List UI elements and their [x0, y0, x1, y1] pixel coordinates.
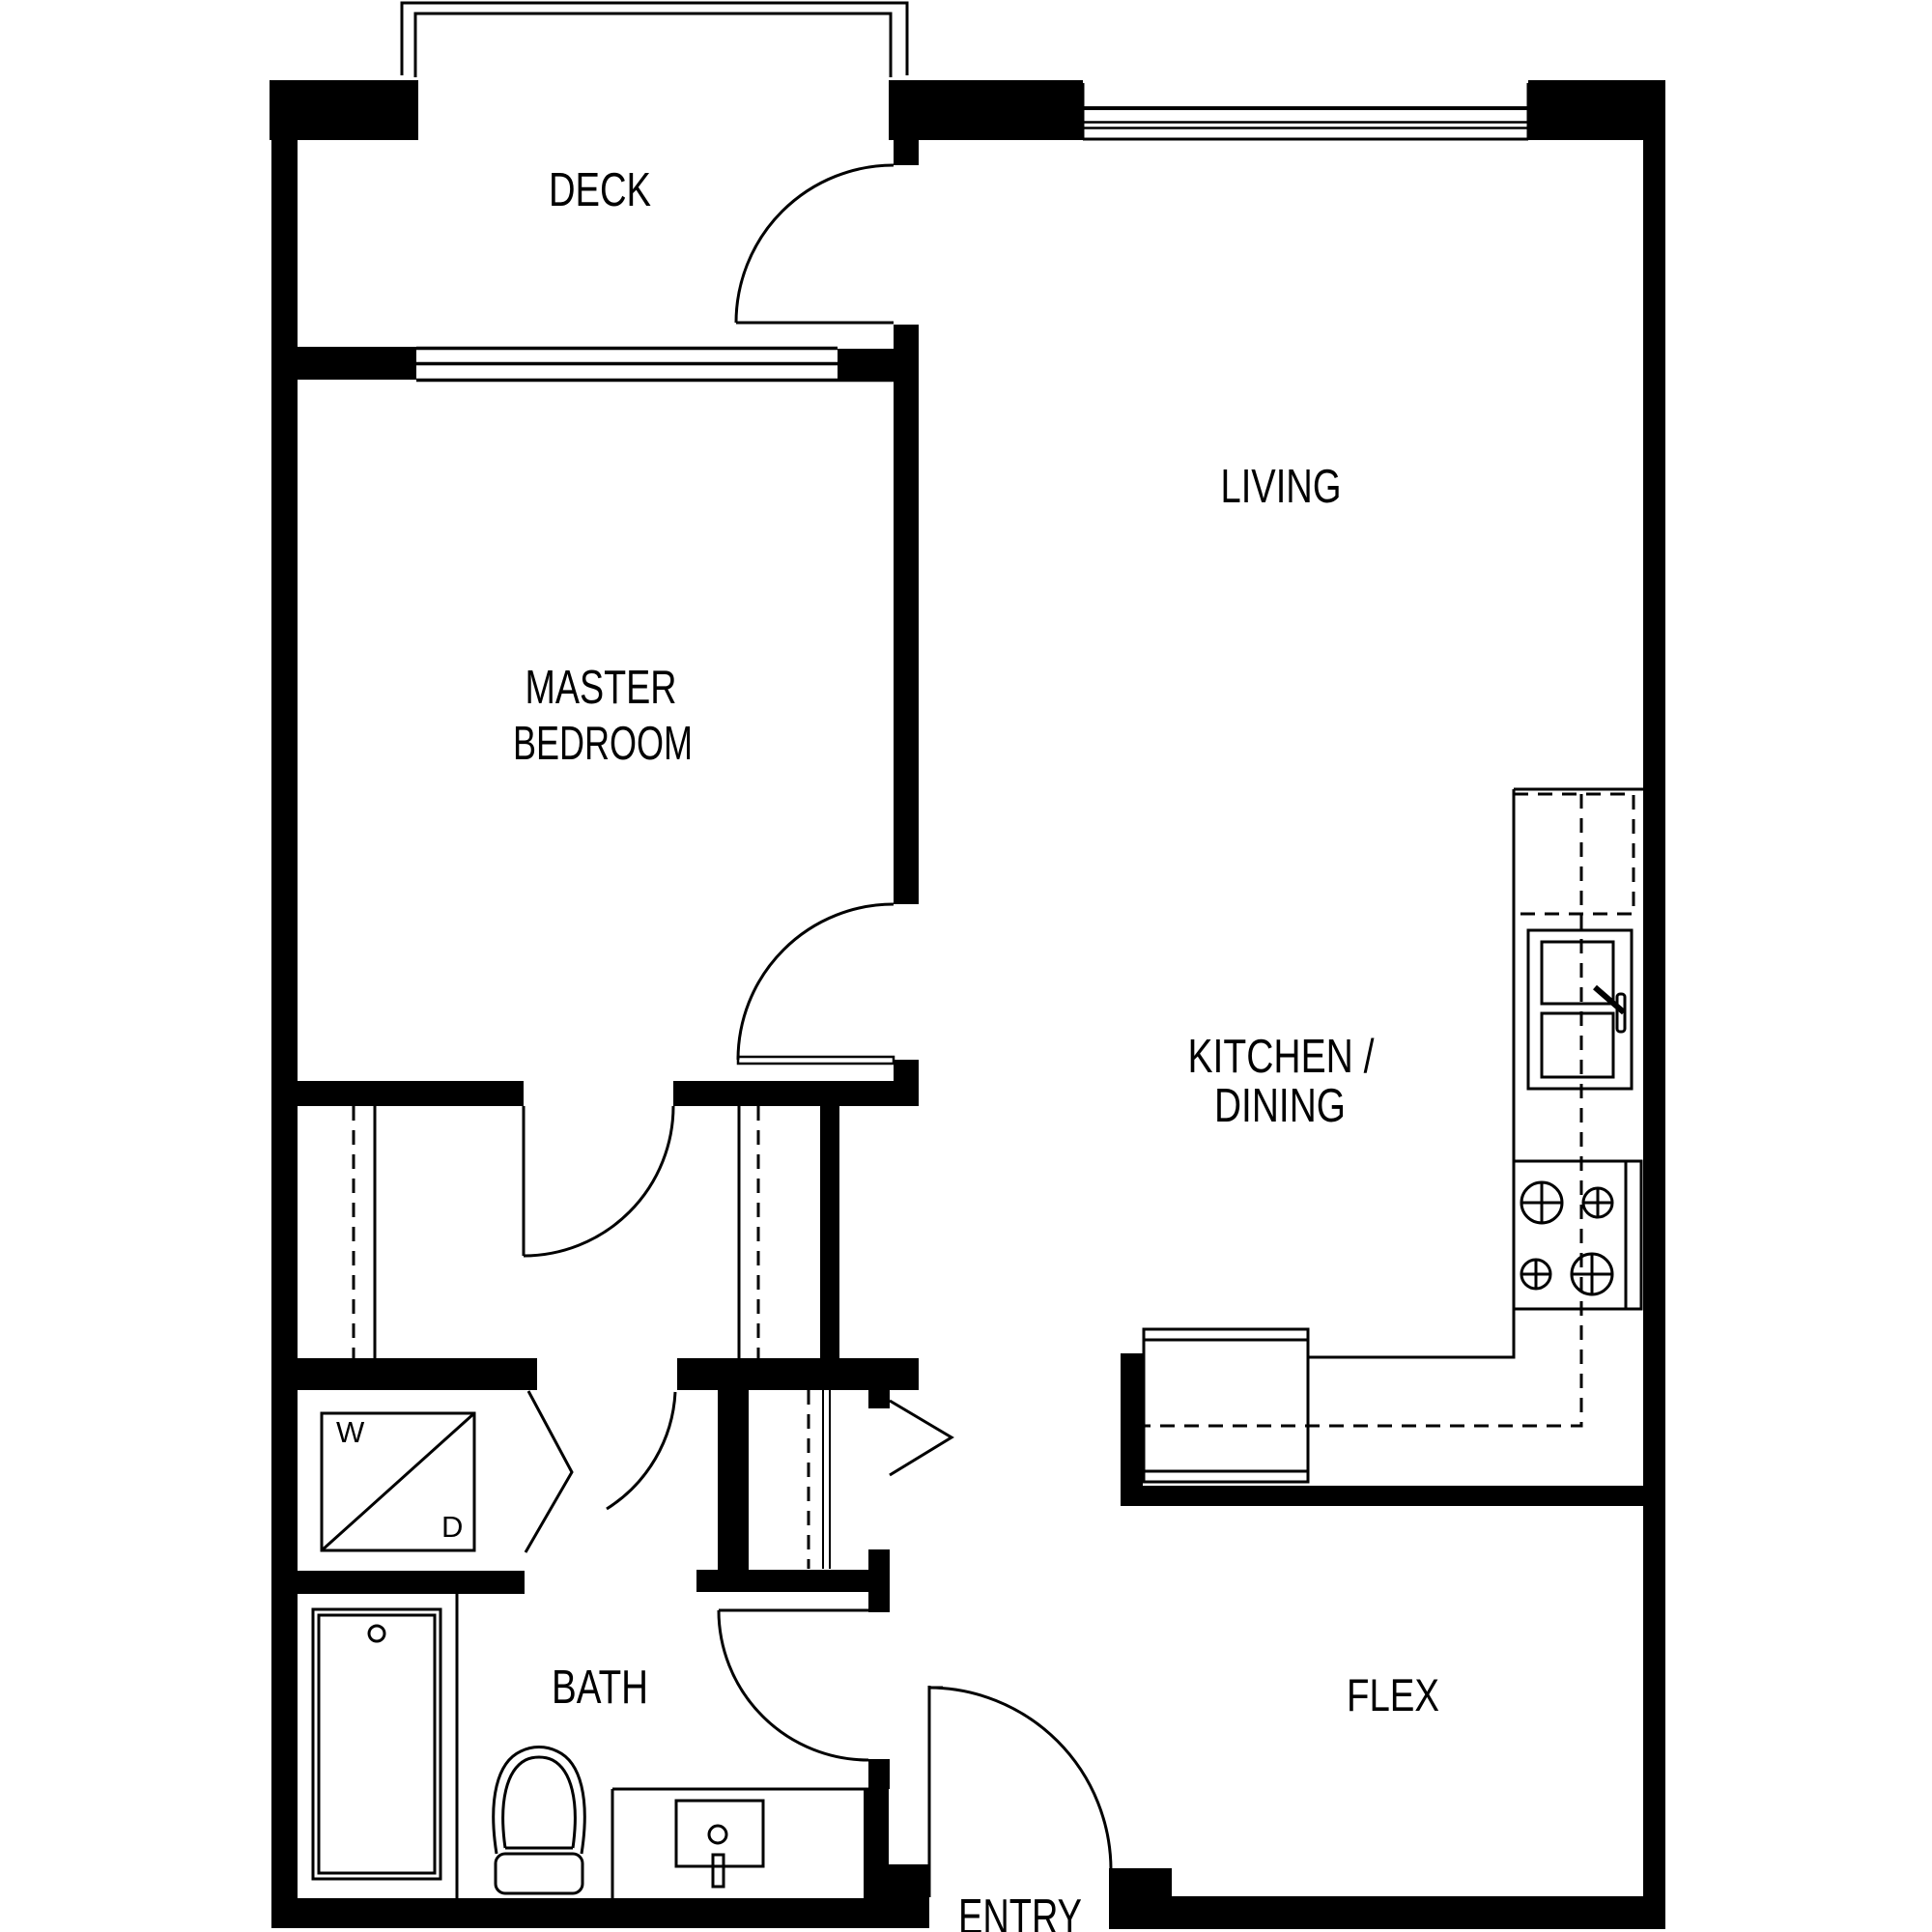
svg-text:LIVING: LIVING [1221, 461, 1342, 513]
svg-text:D: D [441, 1510, 463, 1544]
svg-text:KITCHEN /: KITCHEN / [1188, 1031, 1375, 1083]
svg-text:BEDROOM: BEDROOM [513, 718, 693, 770]
svg-text:DECK: DECK [549, 164, 651, 216]
svg-text:FLEX: FLEX [1347, 1669, 1439, 1720]
svg-text:DINING: DINING [1214, 1080, 1346, 1132]
svg-text:ENTRY: ENTRY [958, 1889, 1082, 1932]
svg-text:W: W [336, 1415, 365, 1449]
svg-text:MASTER: MASTER [526, 662, 677, 714]
svg-text:BATH: BATH [552, 1662, 648, 1714]
